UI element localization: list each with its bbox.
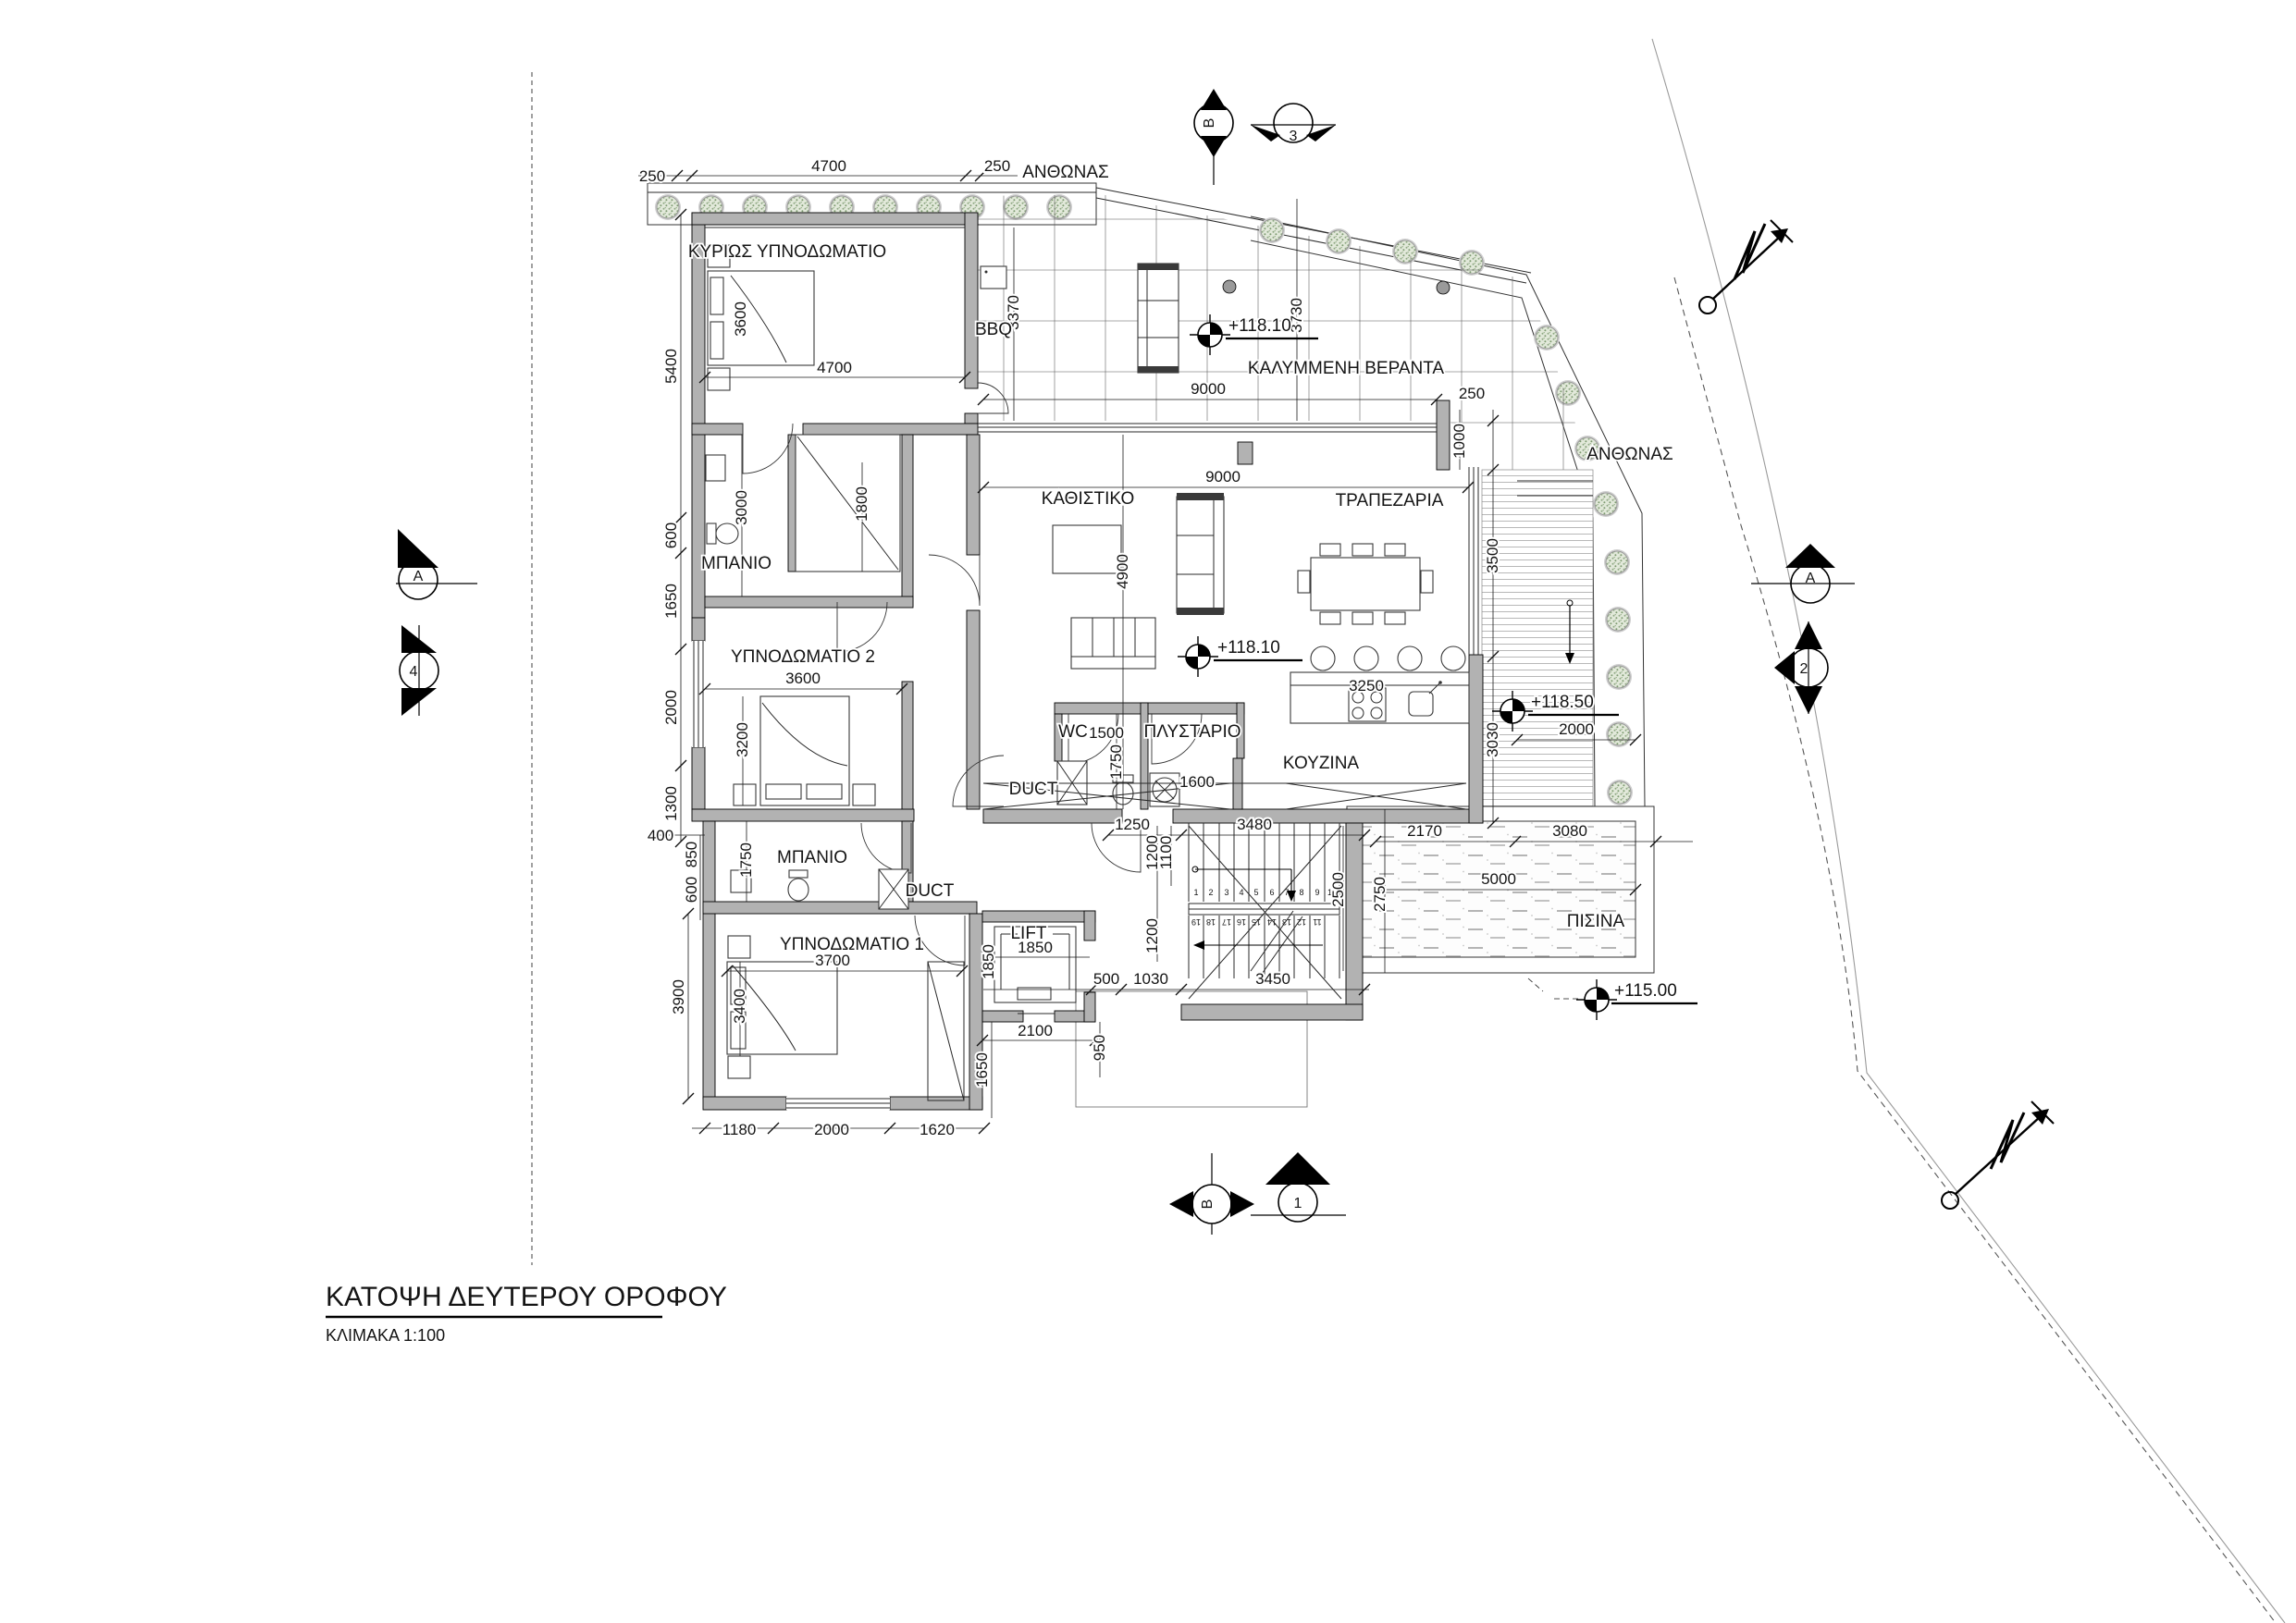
svg-text:2: 2 [1800, 661, 1808, 677]
svg-text:13: 13 [1282, 917, 1291, 927]
dim-label: 250 [984, 157, 1010, 175]
dim-label: 3600 [785, 670, 821, 687]
svg-text:19: 19 [1191, 917, 1201, 927]
dim-label: 4700 [817, 359, 852, 376]
dim-label: 500 [1093, 970, 1119, 988]
svg-text:17: 17 [1222, 917, 1231, 927]
dim-label: 600 [683, 877, 700, 903]
dim-label: 1800 [853, 486, 870, 522]
label-planter-right: ΑΝΘΩΝΑΣ [1586, 445, 1673, 464]
dim-label: 3500 [1484, 538, 1501, 573]
dim-label: 2000 [662, 690, 680, 725]
room-label-bedroom2: ΥΠΝΟΔΩΜΑΤΙΟ 2 [731, 647, 875, 667]
dim-label: 1180 [722, 1121, 757, 1138]
svg-text:1: 1 [1294, 1196, 1302, 1211]
svg-text:11: 11 [1313, 917, 1321, 927]
svg-text:14: 14 [1267, 917, 1277, 927]
sofa-vertical [1177, 493, 1224, 615]
bed-bedroom2 [734, 696, 875, 805]
sofa-horizontal [1071, 618, 1155, 669]
dim-label: 250 [639, 167, 665, 185]
dim-label: 1200 [1143, 918, 1161, 953]
room-label-pool: ΠΙΣΙΝΑ [1567, 912, 1625, 931]
dim-label: 3450 [1255, 970, 1290, 988]
room-label-duct1: DUCT [1009, 780, 1058, 799]
dim-label: 1620 [920, 1121, 955, 1138]
stair-direction-arrow [1193, 941, 1204, 950]
room-label-wc: WC [1058, 722, 1088, 742]
svg-text:7: 7 [1284, 888, 1289, 897]
svg-text:4: 4 [410, 664, 418, 680]
room-label-bedroom1: ΥΠΝΟΔΩΜΑΤΙΟ 1 [780, 935, 924, 954]
svg-text:+118.10: +118.10 [1228, 316, 1291, 336]
toilet-icon [788, 870, 809, 901]
svg-text:12: 12 [1297, 917, 1306, 927]
svg-text:A: A [1806, 571, 1816, 586]
svg-text:B: B [1202, 118, 1217, 129]
dim-label: 850 [683, 842, 700, 867]
dim-label: 4700 [811, 157, 846, 175]
tv-unit [1053, 525, 1121, 573]
svg-text:9: 9 [1315, 888, 1319, 897]
dim-label: 1500 [1089, 724, 1124, 742]
drawing-title: ΚΑΤΟΨΗ ΔΕΥΤΕΡΟΥ ΟΡΟΦΟΥ [326, 1282, 727, 1312]
north-arrow-icon [1699, 220, 1793, 314]
room-label-bath2: ΜΠΑΝΙΟ [777, 848, 847, 867]
svg-text:18: 18 [1206, 917, 1216, 927]
duct-shaft [879, 869, 908, 909]
dim-label: 3200 [734, 722, 751, 757]
floor-plan-page: 12 34 56 78 910 11 12 13 14 15 16 17 18 … [0, 0, 2296, 1623]
dim-label: 2100 [1018, 1022, 1053, 1039]
dim-label: 1000 [1450, 424, 1468, 459]
section-marker-top-b: B [1194, 89, 1233, 185]
section-marker-top-3: 3 [1251, 104, 1336, 144]
svg-text:6: 6 [1269, 888, 1274, 897]
pergola-post [1437, 281, 1450, 294]
dim-label: 3600 [732, 301, 749, 337]
dim-label: 3000 [733, 490, 750, 525]
room-label-laundry: ΠΛΥΣΤΑΡΙΟ [1143, 722, 1241, 742]
elevation-marker-icon: +115.00 [1576, 979, 1697, 1020]
svg-text:5: 5 [1253, 888, 1258, 897]
svg-text:B: B [1200, 1199, 1216, 1210]
room-label-duct2: DUCT [906, 881, 955, 901]
dim-label: 1650 [973, 1052, 991, 1088]
svg-text:3: 3 [1224, 888, 1228, 897]
section-marker-bottom-b: B [1169, 1153, 1254, 1235]
dim-label: 5000 [1481, 870, 1516, 888]
elevation-marker-icon: +118.10 [1178, 636, 1302, 677]
dining-table [1298, 544, 1433, 624]
dim-label: 4900 [1114, 554, 1131, 589]
section-marker-left-a: A [396, 529, 477, 599]
dim-label: 3900 [670, 979, 687, 1014]
toilet-icon [707, 523, 738, 544]
north-arrow-icon [1942, 1101, 2054, 1209]
dim-label: 2000 [814, 1121, 849, 1138]
svg-text:2: 2 [1208, 888, 1213, 897]
dim-label: 1030 [1133, 970, 1168, 988]
dim-label: 2170 [1407, 822, 1442, 840]
dim-label: 1300 [662, 786, 680, 821]
dim-label: 1850 [980, 944, 997, 979]
dim-label: 950 [1091, 1035, 1108, 1061]
bed-master [708, 245, 814, 390]
room-label-kitchen: ΚΟΥΖΙΝΑ [1283, 754, 1360, 773]
dim-label: 2000 [1559, 720, 1594, 738]
room-label-dining: ΤΡΑΠΕΖΑΡΙΑ [1336, 491, 1444, 510]
dim-label: 9000 [1191, 380, 1226, 398]
dim-label: 1750 [737, 842, 755, 878]
section-marker-bottom-1: 1 [1251, 1152, 1346, 1222]
pergola-post [1223, 280, 1236, 293]
dim-label: 3030 [1484, 722, 1501, 757]
dim-label: 2500 [1329, 872, 1347, 907]
svg-text:4: 4 [1239, 888, 1243, 897]
dim-label: 1750 [1107, 744, 1125, 780]
dim-label: 250 [1459, 385, 1485, 402]
svg-text:A: A [414, 569, 424, 584]
dim-label: 1650 [662, 584, 680, 619]
title-block: ΚΑΤΟΨΗ ΔΕΥΤΕΡΟΥ ΟΡΟΦΟΥ ΚΛΙΜΑΚΑ 1:100 [326, 1282, 727, 1345]
svg-text:15: 15 [1252, 917, 1261, 927]
dim-label: 3080 [1552, 822, 1587, 840]
drawing-scale: ΚΛΙΜΑΚΑ 1:100 [326, 1326, 445, 1345]
room-label-master: ΚΥΡΙΩΣ ΥΠΝΟΔΩΜΑΤΙΟ [688, 242, 886, 262]
section-marker-right-a: A [1751, 544, 1855, 603]
dim-label: 3250 [1349, 677, 1384, 695]
dim-label: 1100 [1157, 836, 1175, 870]
outdoor-sofa [1138, 264, 1179, 373]
dim-label: 400 [648, 827, 673, 844]
svg-text:+118.50: +118.50 [1531, 693, 1594, 712]
bbq-counter [981, 266, 1006, 289]
dim-label: 9000 [1205, 468, 1241, 486]
svg-text:16: 16 [1237, 917, 1246, 927]
site-boundary-dashed [1674, 277, 2276, 1623]
sink-icon [1409, 692, 1433, 716]
dim-label: 2750 [1371, 877, 1389, 912]
dim-label: 5400 [662, 349, 680, 384]
svg-text:1: 1 [1193, 888, 1198, 897]
closet [796, 435, 900, 572]
site-boundary-curve [1652, 39, 2285, 1623]
label-planter-top: ΑΝΘΩΝΑΣ [1022, 163, 1109, 182]
room-label-veranda: ΚΑΛΥΜΜΕΝΗ ΒΕΡΑΝΤΑ [1248, 359, 1445, 378]
section-marker-left-4: 4 [400, 625, 438, 716]
dim-label: 1250 [1115, 816, 1150, 833]
room-label-bbq: BBQ [975, 320, 1012, 339]
svg-text:3: 3 [1290, 129, 1298, 144]
dim-label: 600 [662, 523, 680, 548]
wardrobe [928, 962, 964, 1100]
svg-text:8: 8 [1299, 888, 1303, 897]
floor-plan-canvas: 12 34 56 78 910 11 12 13 14 15 16 17 18 … [0, 0, 2296, 1623]
sink-icon [706, 455, 725, 481]
svg-text:+115.00: +115.00 [1614, 981, 1677, 1001]
dim-label: 3400 [731, 989, 748, 1024]
dim-label: 3480 [1237, 816, 1272, 833]
dim-label: 1600 [1179, 773, 1215, 791]
room-label-bath1: ΜΠΑΝΙΟ [701, 554, 772, 573]
room-label-living: ΚΑΘΙΣΤΙΚΟ [1042, 489, 1135, 509]
room-label-lift: LIFT [1010, 924, 1046, 943]
svg-text:+118.10: +118.10 [1217, 638, 1280, 658]
